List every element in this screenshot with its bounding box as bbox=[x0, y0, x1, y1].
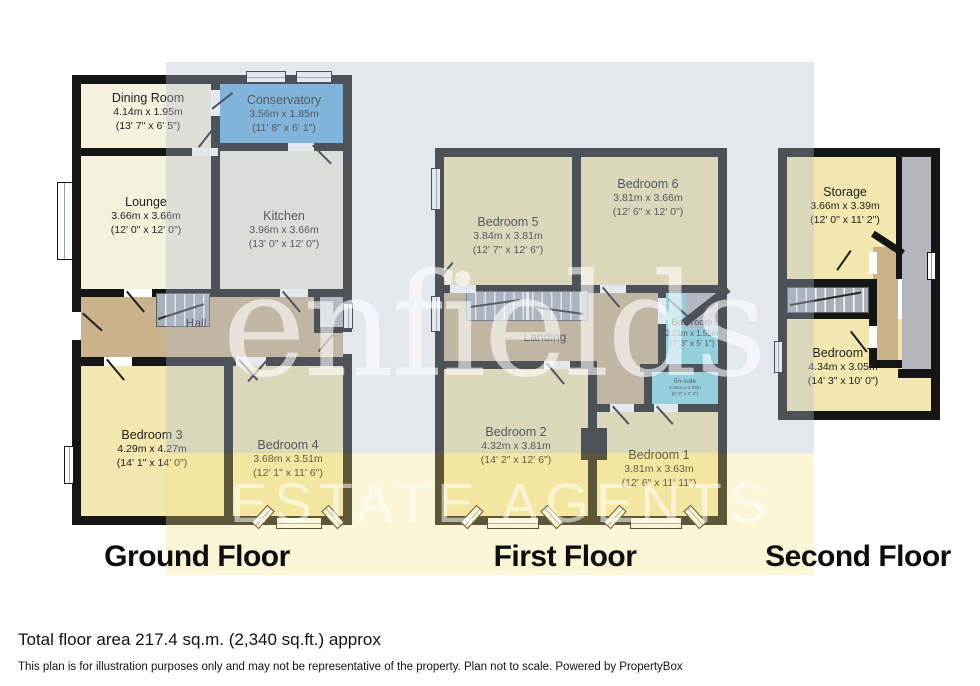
wall bbox=[435, 516, 727, 525]
room-bedroom-7-extension bbox=[902, 378, 931, 411]
first-floor-title: First Floor bbox=[494, 540, 637, 574]
room-label-bedroom-1: Bedroom 1 3.81m x 3.63m (12' 6" x 11' 11… bbox=[622, 447, 697, 491]
room-name: Dining Room bbox=[112, 90, 184, 106]
window bbox=[431, 168, 441, 210]
window bbox=[296, 71, 332, 83]
room-name: Bedroom 3 bbox=[117, 427, 187, 443]
room-hall bbox=[81, 295, 347, 361]
room-metric: 4.14m x 1.95m bbox=[112, 106, 184, 120]
room-imperial: (12' 0" x 11' 2") bbox=[810, 214, 880, 228]
room-label-bedroom-2: Bedroom 2 4.32m x 3.81m (14' 2" x 12' 6"… bbox=[481, 424, 551, 468]
room-label-bedroom-7: Bedroom 7 4.34m x 3.05m (14' 3" x 10' 0"… bbox=[808, 345, 878, 389]
room-name: Landing bbox=[524, 330, 567, 346]
window bbox=[431, 296, 441, 332]
window bbox=[343, 303, 353, 329]
room-metric: 4.32m x 3.81m bbox=[481, 440, 551, 454]
stairs-divider bbox=[526, 292, 529, 320]
room-metric: 3.81m x 3.66m bbox=[613, 192, 683, 206]
room-imperial: (7' 3" x 5' 1") bbox=[666, 339, 719, 349]
room-metric: 3.81m x 3.63m bbox=[622, 463, 697, 477]
door bbox=[869, 252, 877, 274]
room-name: Bedroom 6 bbox=[613, 176, 683, 192]
room-imperial: (14' 2" x 12' 6") bbox=[481, 454, 551, 468]
wall bbox=[72, 289, 352, 297]
room-label-kitchen: Kitchen 3.96m x 3.66m (13' 0" x 12' 0") bbox=[249, 208, 319, 252]
room-label-bedroom-5: Bedroom 5 3.84m x 3.81m (12' 7" x 12' 6"… bbox=[473, 214, 543, 258]
room-label-ensuite: En-suite 2.05m x 0.99m (6' 9" x 3' 3") bbox=[669, 379, 701, 398]
total-floor-area-text: Total floor area 217.4 sq.m. (2,340 sq.f… bbox=[18, 630, 381, 650]
wall bbox=[778, 411, 940, 420]
room-metric: 4.34m x 3.05m bbox=[808, 361, 878, 375]
room-label-bedroom-4: Bedroom 4 3.68m x 3.51m (12' 1" x 11' 6"… bbox=[253, 437, 323, 481]
room-metric: 3.66m x 3.39m bbox=[810, 200, 880, 214]
room-imperial: (11' 8" x 6' 1") bbox=[247, 122, 321, 136]
room-name: Lounge bbox=[111, 194, 181, 210]
room-name: Bathroom bbox=[666, 317, 719, 329]
room-label-storage: Storage 3.66m x 3.39m (12' 0" x 11' 2") bbox=[810, 184, 880, 228]
room-imperial: (13' 7" x 6' 5") bbox=[112, 120, 184, 134]
room-imperial: (12' 6" x 11' 11") bbox=[622, 477, 697, 491]
room-name: Bedroom 1 bbox=[622, 447, 697, 463]
door bbox=[72, 312, 81, 340]
hall-closet bbox=[318, 297, 343, 329]
room-name: Bedroom 7 bbox=[808, 345, 878, 361]
room-name: Bedroom 2 bbox=[481, 424, 551, 440]
room-imperial: (6' 9" x 3' 3") bbox=[669, 392, 701, 398]
room-label-conservatory: Conservatory 3.56m x 1.85m (11' 8" x 6' … bbox=[247, 92, 321, 136]
wall bbox=[572, 148, 581, 293]
wall bbox=[931, 148, 940, 420]
room-metric: 3.96m x 3.66m bbox=[249, 224, 319, 238]
room-name: Bedroom 5 bbox=[473, 214, 543, 230]
disclaimer-text: This plan is for illustration purposes o… bbox=[18, 661, 683, 673]
wall bbox=[778, 279, 873, 287]
wall bbox=[640, 364, 727, 372]
ground-floor-title: Ground Floor bbox=[104, 540, 290, 574]
wall bbox=[435, 361, 597, 369]
room-imperial: (12' 1" x 11' 6") bbox=[253, 467, 323, 481]
room-imperial: (12' 6" x 12' 0") bbox=[613, 206, 683, 220]
wall bbox=[314, 327, 346, 333]
wall bbox=[224, 357, 233, 525]
chimney-breast bbox=[581, 428, 607, 460]
room-metric: 3.68m x 3.51m bbox=[253, 453, 323, 467]
door bbox=[192, 148, 218, 156]
window bbox=[246, 71, 286, 83]
wall bbox=[435, 148, 727, 157]
floorplan-canvas: Dining Room 4.14m x 1.95m (13' 7" x 6' 5… bbox=[0, 0, 980, 686]
room-imperial: (12' 0" x 12' 0") bbox=[111, 224, 181, 238]
room-label-hall: Hall bbox=[186, 316, 207, 332]
wall bbox=[211, 143, 352, 151]
door bbox=[343, 332, 352, 354]
window bbox=[487, 517, 539, 529]
window bbox=[64, 446, 74, 484]
room-metric: 3.56m x 1.85m bbox=[247, 108, 321, 122]
room-label-landing: Landing bbox=[524, 330, 567, 346]
room-metric: 2.21m x 1.55m bbox=[666, 329, 719, 339]
room-label-bathroom: Bathroom 2.21m x 1.55m (7' 3" x 5' 1") bbox=[666, 317, 719, 349]
room-metric: 3.84m x 3.81m bbox=[473, 230, 543, 244]
room-name: Storage bbox=[810, 184, 880, 200]
room-imperial: (14' 1" x 14' 0") bbox=[117, 457, 187, 471]
wall bbox=[898, 369, 940, 378]
room-name: Bedroom 4 bbox=[253, 437, 323, 453]
window bbox=[57, 182, 73, 260]
room-name: Hall bbox=[186, 316, 207, 332]
window bbox=[276, 517, 322, 529]
window bbox=[774, 341, 783, 373]
room-name: Conservatory bbox=[247, 92, 321, 108]
window bbox=[927, 252, 936, 280]
room-name: Kitchen bbox=[249, 208, 319, 224]
wall bbox=[718, 148, 727, 525]
room-label-lounge: Lounge 3.66m x 3.66m (12' 0" x 12' 0") bbox=[111, 194, 181, 238]
room-imperial: (12' 7" x 12' 6") bbox=[473, 244, 543, 258]
door bbox=[450, 285, 476, 293]
window bbox=[630, 517, 682, 529]
stairs bbox=[787, 287, 869, 313]
room-metric: 3.66m x 3.66m bbox=[111, 210, 181, 224]
room-imperial: (14' 3" x 10' 0") bbox=[808, 375, 878, 389]
room-metric: 4.29m x 4.27m bbox=[117, 443, 187, 457]
wall bbox=[778, 148, 940, 157]
room-label-bedroom-6: Bedroom 6 3.81m x 3.66m (12' 6" x 12' 0"… bbox=[613, 176, 683, 220]
room-imperial: (13' 0" x 12' 0") bbox=[249, 238, 319, 252]
second-floor-title: Second Floor bbox=[765, 540, 951, 574]
wall bbox=[896, 157, 902, 279]
door bbox=[288, 143, 314, 151]
room-label-dining: Dining Room 4.14m x 1.95m (13' 7" x 6' 5… bbox=[112, 90, 184, 134]
room-label-bedroom-3: Bedroom 3 4.29m x 4.27m (14' 1" x 14' 0"… bbox=[117, 427, 187, 471]
